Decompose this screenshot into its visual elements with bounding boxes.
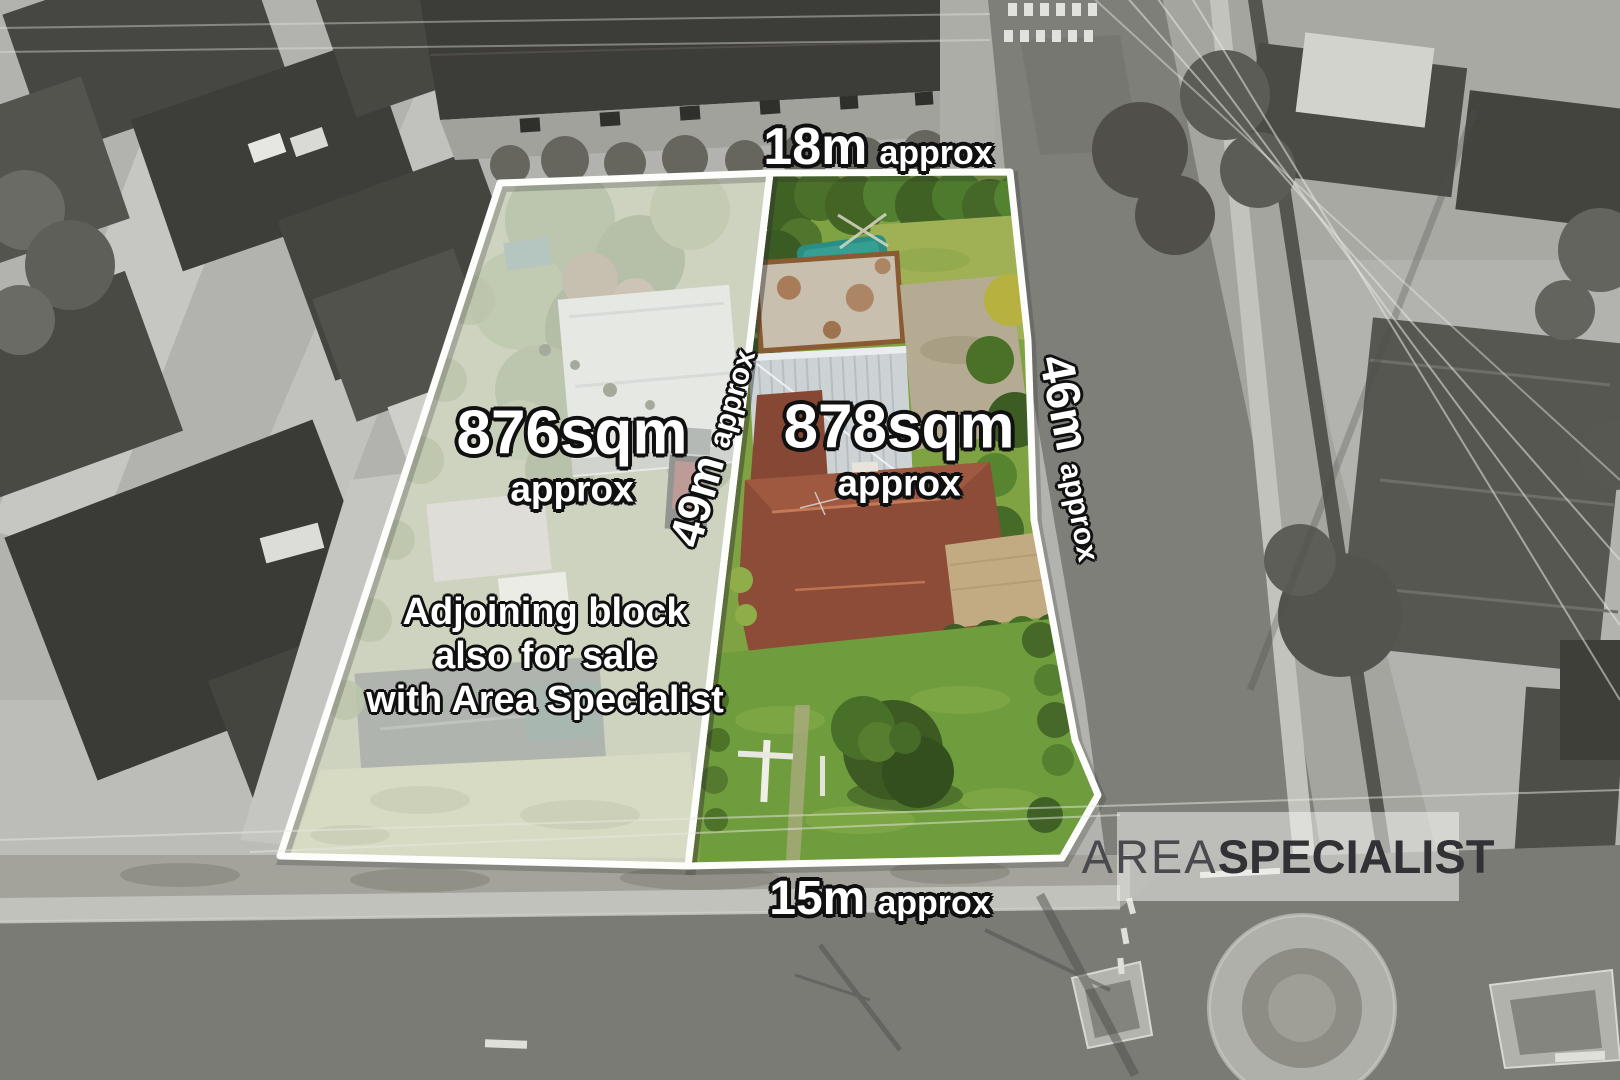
dimension-bottom-suffix: approx xyxy=(877,886,990,920)
lot-area-right-suffix: approx xyxy=(837,465,960,502)
lot-area-left-value: 876sqm xyxy=(457,403,688,465)
lot-area-right: 878sqm approx xyxy=(784,397,1015,502)
adjoining-block-note: Adjoining block also for sale with Area … xyxy=(366,590,724,722)
brand-watermark-specialist: SPECIALIST xyxy=(1218,829,1495,884)
note-line-1: Adjoining block xyxy=(366,590,724,634)
dimension-top: 18m approx xyxy=(763,121,992,173)
lot-area-left: 876sqm approx xyxy=(457,403,688,508)
aerial-listing-photo: 18m approx 876sqm approx 878sqm approx 4… xyxy=(0,0,1620,1080)
note-line-3: with Area Specialist xyxy=(366,678,724,722)
rust-shed-roof xyxy=(755,253,903,351)
dimension-top-value: 18m xyxy=(763,121,867,173)
lot-area-right-value: 878sqm xyxy=(784,397,1015,459)
note-line-2: also for sale xyxy=(366,634,724,678)
dimension-bottom: 15m approx xyxy=(769,875,990,923)
brand-watermark: AREASPECIALIST xyxy=(1117,812,1459,901)
dimension-top-suffix: approx xyxy=(879,136,992,170)
brand-watermark-area: AREA xyxy=(1082,829,1218,884)
lot-area-left-suffix: approx xyxy=(510,471,633,508)
dimension-bottom-value: 15m xyxy=(769,875,865,923)
